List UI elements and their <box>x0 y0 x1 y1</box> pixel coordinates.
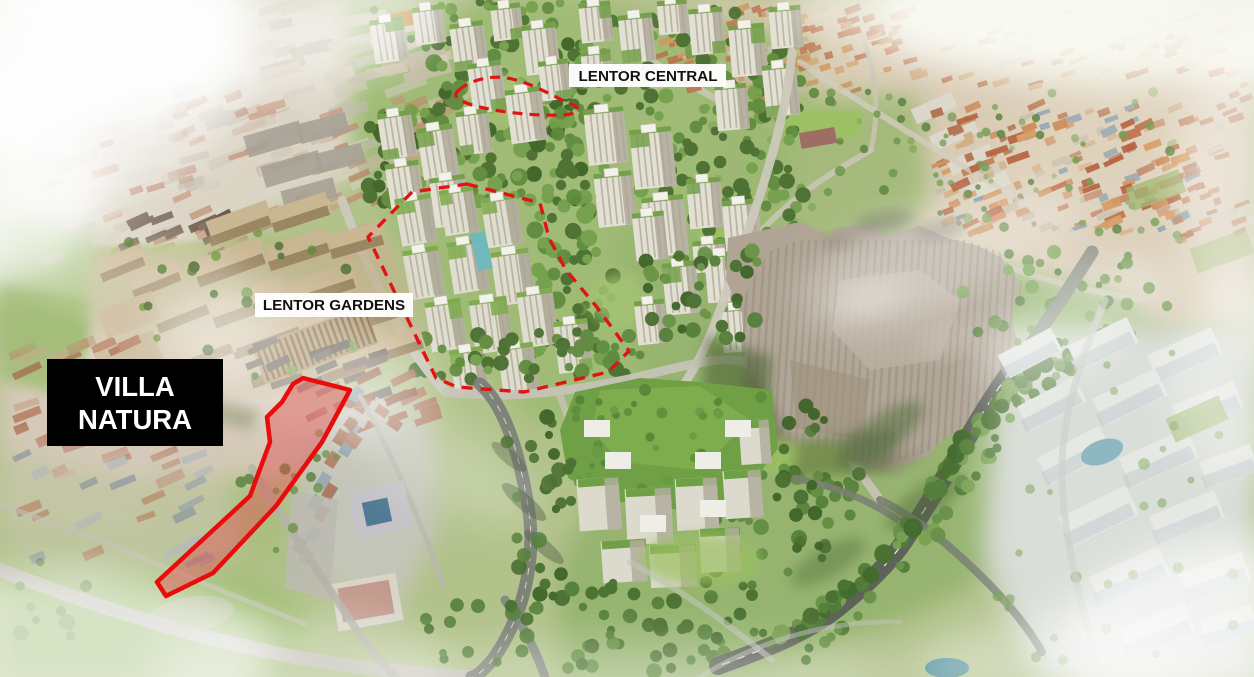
svg-text:LENTOR CENTRAL: LENTOR CENTRAL <box>579 68 718 85</box>
svg-text:NATURA: NATURA <box>78 404 192 435</box>
svg-text:LENTOR GARDENS: LENTOR GARDENS <box>263 297 405 314</box>
svg-text:VILLA: VILLA <box>95 371 175 402</box>
